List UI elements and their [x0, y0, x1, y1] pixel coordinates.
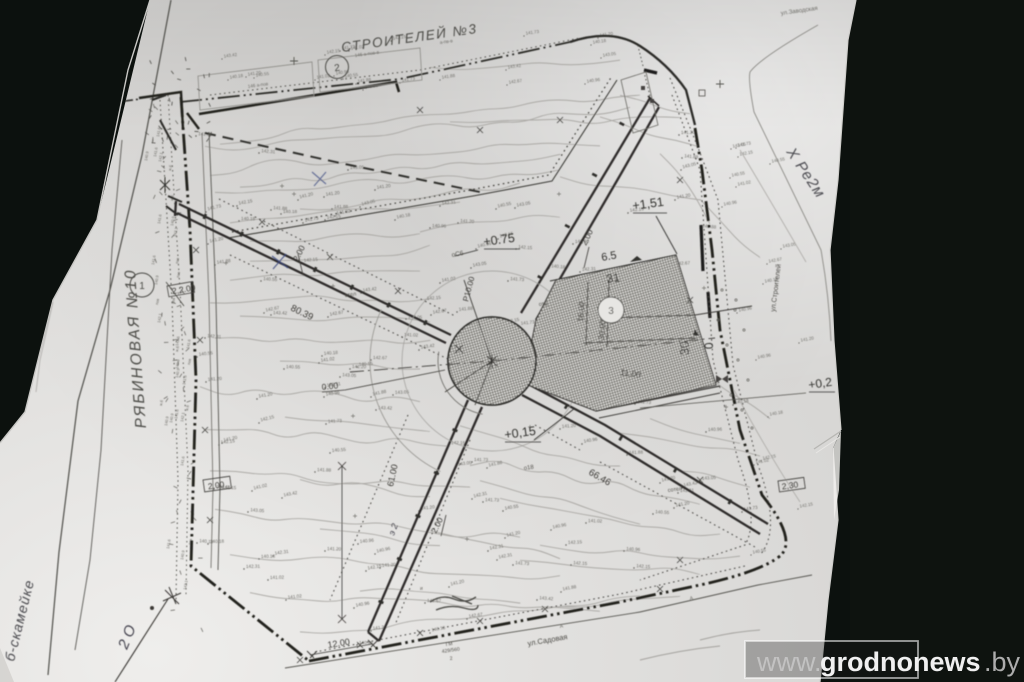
svg-text:140.18: 140.18 [241, 216, 256, 221]
svg-text:140.55: 140.55 [655, 509, 670, 515]
svg-text:142.15: 142.15 [573, 560, 588, 566]
svg-text:140.55: 140.55 [286, 364, 301, 370]
svg-text:143.05: 143.05 [702, 475, 717, 481]
svg-text:0.00: 0.00 [321, 380, 339, 392]
svg-text:140.96: 140.96 [432, 223, 447, 229]
svg-text:142.31: 142.31 [246, 564, 261, 569]
svg-text:140.18: 140.18 [261, 554, 276, 559]
svg-text:141.73: 141.73 [515, 560, 530, 566]
svg-text:143.42: 143.42 [273, 310, 288, 316]
svg-text:141.20: 141.20 [460, 218, 475, 224]
svg-text:отд: отд [538, 301, 548, 308]
svg-text:140.96: 140.96 [626, 546, 641, 552]
svg-text:143.05: 143.05 [342, 372, 357, 378]
svg-text:141.73: 141.73 [510, 276, 525, 282]
svg-text:и: и [420, 586, 423, 592]
svg-text:141.20: 141.20 [352, 364, 367, 369]
svg-text:140.96: 140.96 [708, 427, 723, 432]
svg-text:141.20: 141.20 [562, 423, 577, 429]
svg-text:3: 3 [608, 306, 614, 317]
svg-text:30: 30 [678, 341, 692, 355]
svg-text:grodnonews: grodnonews [820, 647, 981, 677]
svg-text:142.15: 142.15 [427, 295, 442, 301]
svg-text:141.73: 141.73 [474, 457, 489, 462]
svg-text:.by: .by [984, 647, 1021, 677]
svg-text:141.20: 141.20 [208, 376, 223, 382]
svg-text:141.73: 141.73 [328, 418, 343, 424]
svg-text:www.: www. [756, 647, 822, 677]
svg-text:141.73: 141.73 [485, 497, 500, 503]
svg-text:141.02: 141.02 [270, 575, 285, 580]
svg-text:141.20: 141.20 [327, 546, 342, 552]
svg-text:141.88: 141.88 [317, 467, 332, 473]
svg-text:0: 0 [702, 342, 716, 349]
svg-text:140.18: 140.18 [324, 350, 339, 356]
svg-text:142.15: 142.15 [568, 539, 583, 545]
svg-text:142.67: 142.67 [373, 355, 388, 360]
svg-text:141.02: 141.02 [588, 518, 603, 524]
svg-text:16.00: 16.00 [576, 301, 586, 322]
svg-text:140.18: 140.18 [283, 209, 297, 214]
svg-text:140.55: 140.55 [332, 447, 347, 453]
svg-text:141.20: 141.20 [382, 562, 397, 568]
svg-text:31: 31 [605, 270, 620, 286]
svg-text:141.88: 141.88 [334, 204, 348, 209]
svg-text:141.20: 141.20 [681, 130, 696, 135]
